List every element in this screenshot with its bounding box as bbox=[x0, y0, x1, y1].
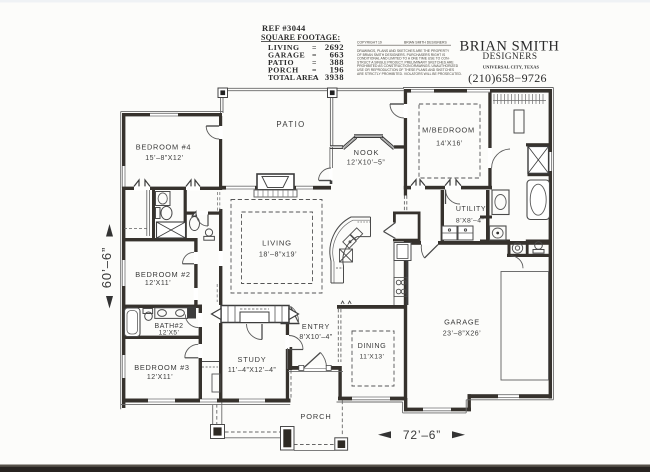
svg-text:LIVING: LIVING bbox=[262, 239, 292, 248]
svg-text:NOOK: NOOK bbox=[354, 148, 380, 157]
svg-text:(210)658−9726: (210)658−9726 bbox=[468, 71, 547, 85]
svg-text:=: = bbox=[313, 73, 318, 82]
svg-text:SQUARE FOOTAGE:: SQUARE FOOTAGE: bbox=[261, 33, 340, 42]
svg-text:11’X13’: 11’X13’ bbox=[360, 354, 385, 361]
svg-text:8’X8’–4”: 8’X8’–4” bbox=[456, 218, 484, 225]
svg-text:12’X5’: 12’X5’ bbox=[159, 330, 180, 337]
svg-text:TOTAL AREA: TOTAL AREA bbox=[268, 73, 319, 82]
svg-text:3938: 3938 bbox=[325, 72, 344, 82]
svg-text:STUDY: STUDY bbox=[237, 355, 266, 364]
svg-text:18’–8”x19’: 18’–8”x19’ bbox=[259, 250, 297, 259]
svg-text:UNIVERSAL CITY, TEXAS: UNIVERSAL CITY, TEXAS bbox=[483, 65, 540, 70]
svg-text:BEDROOM #3: BEDROOM #3 bbox=[134, 363, 189, 372]
svg-text:8’X10’–4”: 8’X10’–4” bbox=[299, 334, 332, 341]
svg-text:72’–6”: 72’–6” bbox=[403, 428, 441, 442]
svg-text:BEDROOM #4: BEDROOM #4 bbox=[136, 143, 191, 152]
svg-text:ARE STRICTLY PROHIBITED. VIOL: ARE STRICTLY PROHIBITED. VIOLATORS WILL … bbox=[357, 72, 462, 76]
svg-text:23’–8”X26’: 23’–8”X26’ bbox=[443, 331, 481, 338]
svg-text:12’X11’: 12’X11’ bbox=[145, 280, 171, 287]
svg-text:11’–4”X12’–4”: 11’–4”X12’–4” bbox=[228, 367, 277, 374]
svg-text:PATIO: PATIO bbox=[276, 120, 305, 129]
svg-text:12’X11’: 12’X11’ bbox=[147, 374, 173, 381]
svg-text:14’X16’: 14’X16’ bbox=[436, 141, 463, 148]
svg-text:ENTRY: ENTRY bbox=[302, 322, 330, 331]
svg-text:REF #3044: REF #3044 bbox=[262, 23, 306, 33]
svg-text:DESIGNERS: DESIGNERS bbox=[482, 51, 537, 61]
svg-text:M/BEDROOM: M/BEDROOM bbox=[422, 126, 475, 135]
svg-text:COPYRIGHT 19: COPYRIGHT 19 bbox=[357, 41, 382, 45]
svg-text:12’X10’–5”: 12’X10’–5” bbox=[347, 160, 386, 167]
svg-text:60’–6”: 60’–6” bbox=[99, 247, 114, 289]
svg-text:GARAGE: GARAGE bbox=[444, 318, 480, 327]
svg-text:UTILITY: UTILITY bbox=[456, 206, 486, 213]
svg-text:BEDROOM #2: BEDROOM #2 bbox=[135, 270, 190, 279]
svg-text:PORCH: PORCH bbox=[300, 412, 331, 421]
svg-text:15’–8”X12’: 15’–8”X12’ bbox=[145, 155, 183, 162]
svg-text:BRIAN SMITH DESIGNERS: BRIAN SMITH DESIGNERS bbox=[404, 41, 448, 45]
svg-text:DINING: DINING bbox=[358, 341, 387, 350]
